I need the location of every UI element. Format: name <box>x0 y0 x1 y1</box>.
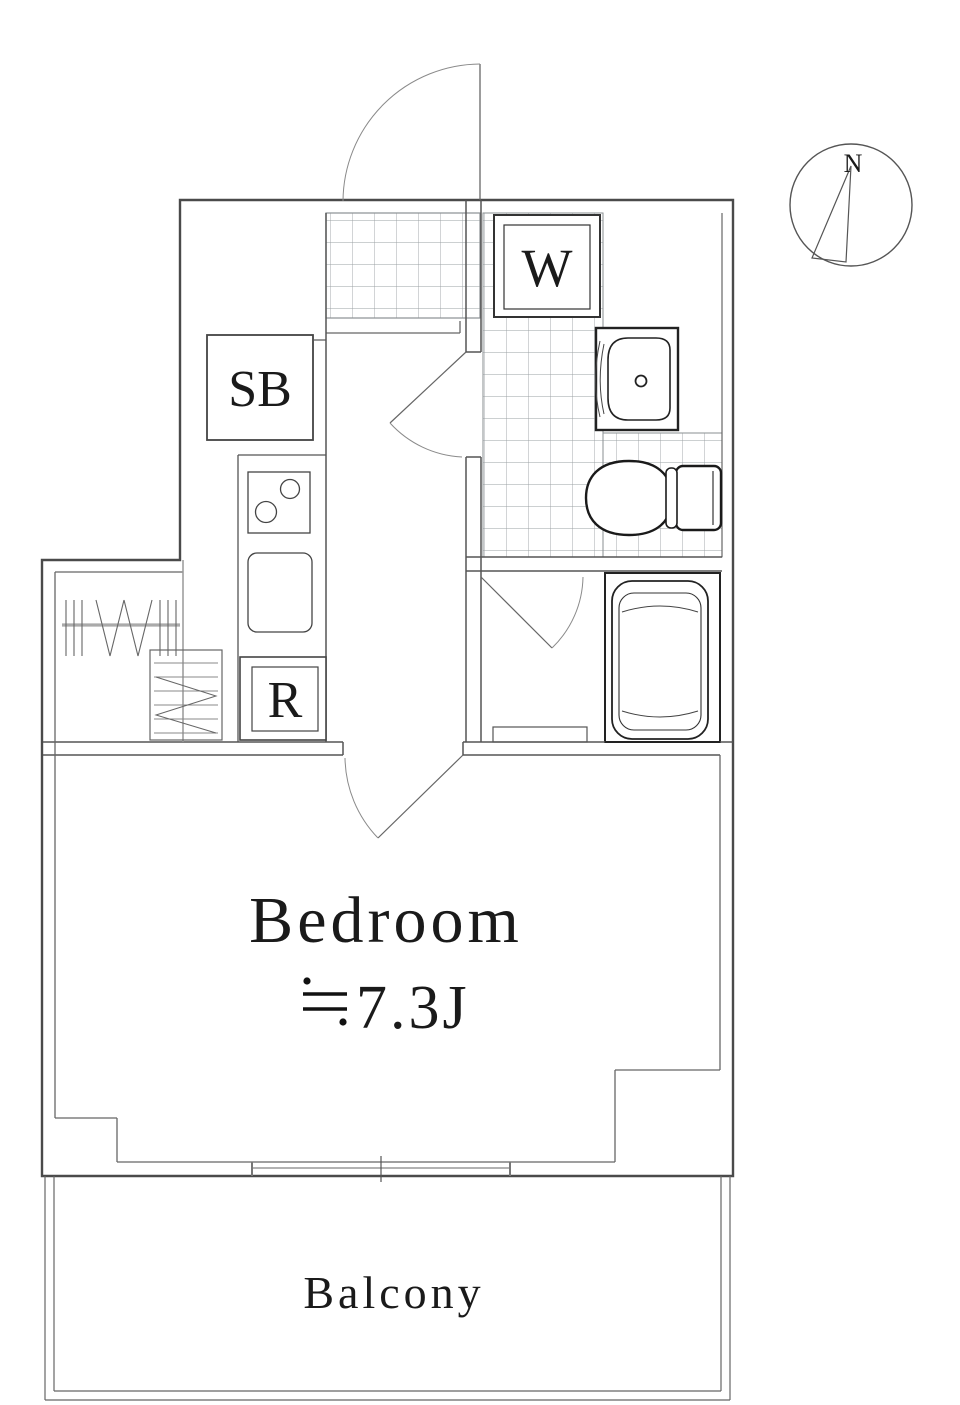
floorplan-canvas: W Balc <box>0 0 960 1405</box>
approx-equal-dot-bottom <box>339 1018 346 1025</box>
bathtub-room <box>605 573 720 742</box>
washer-label: W <box>522 238 573 298</box>
toilet-tank <box>676 466 721 530</box>
bedroom-label: Bedroom <box>249 884 523 957</box>
toilet-bowl <box>586 461 672 535</box>
bath-step <box>493 727 587 742</box>
bedroom-area-label: 7.3J <box>356 974 470 1042</box>
compass-north-label: N <box>844 149 863 178</box>
refrigerator-label: R <box>268 672 303 729</box>
shoe-box-label: SB <box>228 361 292 418</box>
toilet-seat-hinge <box>666 468 677 528</box>
kitchen-stove <box>248 472 310 533</box>
genkan-tile-floor <box>326 213 480 318</box>
vanity-sink <box>596 328 679 430</box>
shoe-box: SB <box>207 335 326 440</box>
toilet <box>586 461 721 535</box>
floorplan-page: W Balc <box>0 0 960 1405</box>
balcony-label: Balcony <box>303 1267 484 1318</box>
washer-pan: W <box>494 215 600 317</box>
approx-equal-dot-top <box>303 977 310 984</box>
bathtub-outer <box>612 581 708 739</box>
refrigerator-space: R <box>240 657 326 740</box>
vanity-drain <box>636 376 647 387</box>
page-background <box>0 0 960 1405</box>
